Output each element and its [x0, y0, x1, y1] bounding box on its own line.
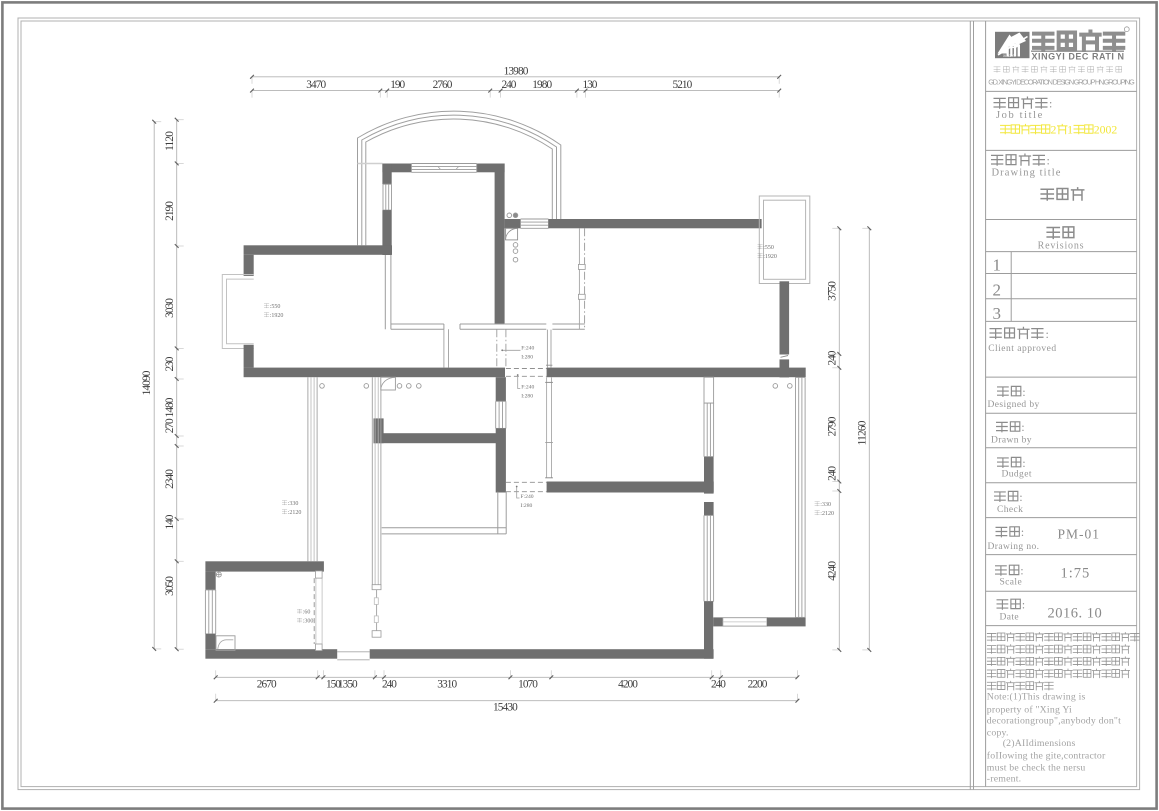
svg-text:190: 190 — [390, 79, 405, 91]
svg-text:1: 1 — [993, 256, 1002, 275]
svg-text:PM-01: PM-01 — [1058, 527, 1101, 542]
svg-text:2670: 2670 — [257, 679, 277, 691]
svg-text:3050: 3050 — [164, 576, 176, 596]
svg-text:4240: 4240 — [826, 561, 838, 581]
svg-text:1980: 1980 — [532, 79, 552, 91]
svg-text:3: 3 — [993, 304, 1002, 323]
svg-text:4200: 4200 — [618, 679, 638, 691]
svg-text:copy.: copy. — [987, 728, 1009, 739]
svg-text:Scale: Scale — [1000, 578, 1023, 588]
svg-text::: : — [1019, 492, 1022, 504]
svg-text:1:75: 1:75 — [1061, 566, 1091, 582]
svg-text::1920: :1920 — [763, 254, 777, 260]
svg-text:240: 240 — [501, 79, 516, 91]
svg-text:270: 270 — [164, 418, 176, 433]
svg-text:5210: 5210 — [673, 79, 693, 91]
svg-text:3310: 3310 — [437, 679, 457, 691]
svg-text:14090: 14090 — [141, 370, 153, 395]
svg-text:2: 2 — [1051, 123, 1057, 137]
svg-text:2016. 10: 2016. 10 — [1048, 605, 1103, 621]
svg-text:Dudget: Dudget — [1002, 469, 1032, 479]
svg-text:1: 1 — [1067, 123, 1073, 137]
svg-text:3030: 3030 — [164, 298, 176, 318]
svg-text::: : — [1022, 600, 1025, 612]
svg-text:140: 140 — [164, 514, 176, 529]
svg-text:3750: 3750 — [826, 281, 838, 301]
svg-text:Check: Check — [997, 505, 1023, 515]
svg-text:1350: 1350 — [338, 679, 358, 691]
svg-text:I:280: I:280 — [521, 393, 533, 399]
svg-text::550: :550 — [270, 304, 281, 310]
svg-text:1480: 1480 — [164, 397, 176, 417]
svg-text:230: 230 — [164, 356, 176, 371]
svg-text:2190: 2190 — [164, 201, 176, 221]
svg-text::550: :550 — [763, 245, 774, 251]
svg-text:-rement.: -rement. — [987, 774, 1022, 785]
svg-text:Job title: Job title — [996, 110, 1044, 121]
svg-text::1920: :1920 — [270, 313, 284, 319]
svg-text:Revisions: Revisions — [1038, 240, 1085, 251]
svg-text:240: 240 — [826, 466, 838, 481]
svg-text:2790: 2790 — [826, 416, 838, 436]
svg-text:2200: 2200 — [748, 679, 768, 691]
svg-text:2002: 2002 — [1094, 123, 1118, 137]
svg-text:2: 2 — [993, 281, 1002, 300]
svg-text:Date: Date — [1000, 612, 1020, 622]
svg-text:2760: 2760 — [433, 79, 453, 91]
svg-text::: : — [1021, 527, 1024, 539]
svg-text:decorationgroup",anybody don"t: decorationgroup",anybody don"t — [987, 716, 1121, 727]
svg-text:GD. XINGYI DECORATION DESIGN G: GD. XINGYI DECORATION DESIGN GROUP HN.GR… — [988, 77, 1135, 86]
svg-text::: : — [1022, 458, 1025, 470]
svg-text:Designed by: Designed by — [988, 400, 1040, 410]
svg-text::330: :330 — [820, 502, 831, 508]
svg-text:Client approved: Client approved — [988, 344, 1056, 354]
svg-text:Drawing title: Drawing title — [992, 167, 1062, 178]
svg-text:F:240: F:240 — [521, 346, 534, 352]
svg-text:F:240: F:240 — [521, 384, 534, 390]
svg-text:XINGYI DEC RATI N: XINGYI DEC RATI N — [1032, 51, 1125, 61]
svg-text::300: :300 — [303, 619, 314, 625]
svg-text::: : — [1049, 97, 1052, 111]
svg-text:130: 130 — [582, 79, 597, 91]
svg-text:15430: 15430 — [493, 702, 518, 714]
svg-text:240: 240 — [382, 679, 397, 691]
svg-text:I:280: I:280 — [521, 503, 533, 509]
svg-text::330: :330 — [288, 501, 299, 507]
svg-text::: : — [1020, 566, 1023, 578]
svg-text:foIIowing the gite,contractor: foIIowing the gite,contractor — [987, 750, 1106, 761]
svg-text:11260: 11260 — [856, 420, 868, 445]
svg-text:F:240: F:240 — [521, 494, 534, 500]
svg-text:13980: 13980 — [504, 65, 529, 77]
svg-text:240: 240 — [711, 679, 726, 691]
svg-text::: : — [1021, 422, 1024, 434]
svg-text:1070: 1070 — [518, 679, 538, 691]
svg-text::: : — [1046, 327, 1049, 341]
svg-text:(2)AIIdimensions: (2)AIIdimensions — [987, 738, 1076, 749]
svg-text:must be check the nersu: must be check the nersu — [987, 762, 1086, 773]
svg-text:XINGYI: XINGYI — [1003, 54, 1015, 58]
svg-text:240: 240 — [826, 350, 838, 365]
svg-text::2120: :2120 — [288, 510, 302, 516]
svg-text::2120: :2120 — [820, 511, 834, 517]
svg-text:I:280: I:280 — [521, 355, 533, 361]
svg-text:Note:(1)This drawing is: Note:(1)This drawing is — [987, 692, 1086, 703]
svg-text::: : — [1047, 154, 1050, 168]
svg-text:3470: 3470 — [306, 79, 326, 91]
svg-text:1120: 1120 — [164, 131, 176, 151]
svg-text::: : — [1022, 387, 1025, 399]
svg-text:2340: 2340 — [164, 469, 176, 489]
svg-text:Drawn by: Drawn by — [991, 435, 1032, 445]
svg-text:Drawing no.: Drawing no. — [988, 542, 1040, 552]
svg-text:property of "Xing Yi: property of "Xing Yi — [987, 704, 1072, 715]
svg-text::60: :60 — [303, 610, 311, 616]
